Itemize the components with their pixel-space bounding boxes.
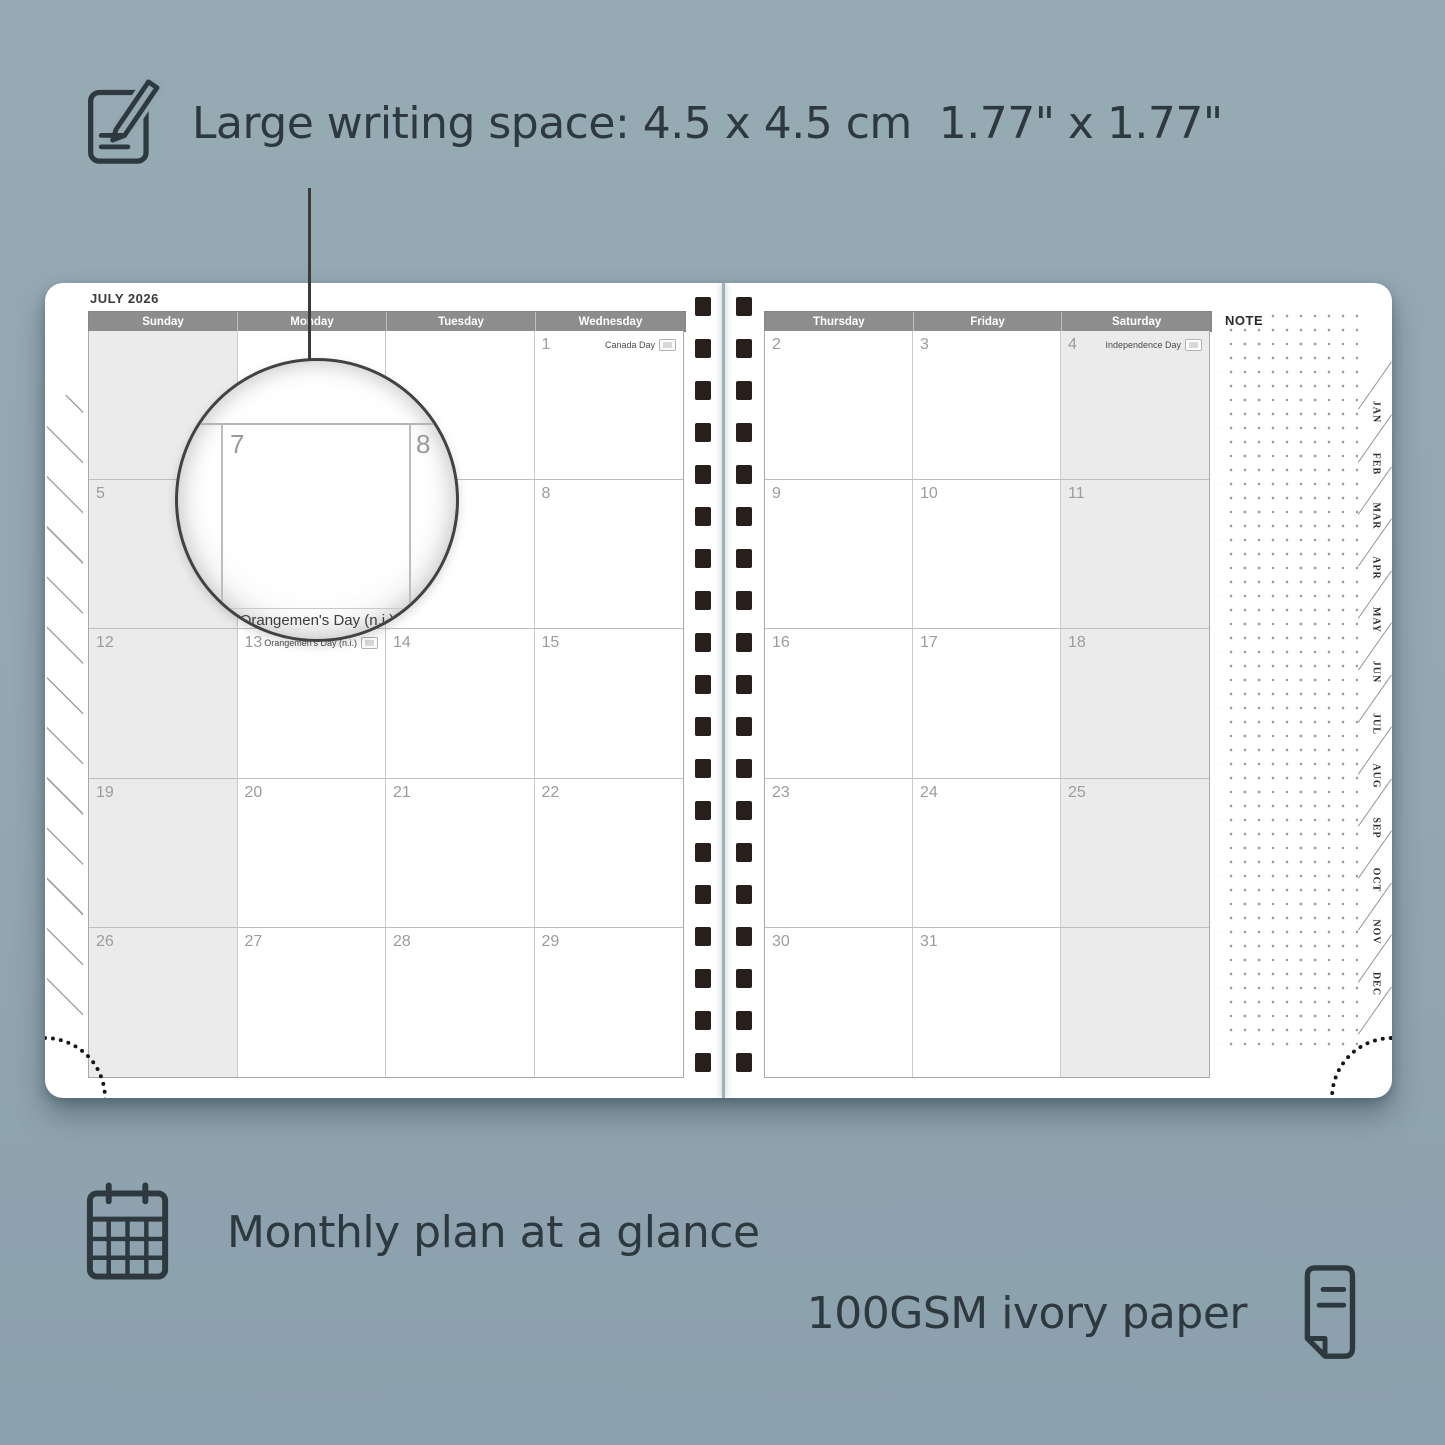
month-tab: MAR [1359, 490, 1392, 542]
calendar-cell: 18 [1061, 629, 1209, 778]
day-number: 23 [772, 784, 790, 802]
magnified-grid-line [196, 608, 438, 609]
day-number: 5 [96, 485, 105, 503]
weekday-header: Saturday [1062, 312, 1211, 331]
magnified-grid-line [221, 423, 223, 609]
spiral-hole-icon [695, 507, 711, 526]
flag-badge-icon [361, 637, 378, 649]
month-tab: OCT [1359, 854, 1392, 906]
spiral-hole-icon [695, 423, 711, 442]
holiday-label: Canada Day [605, 340, 655, 350]
calendar-cell: 21 [386, 779, 535, 928]
month-tab-label: NOV [1371, 919, 1382, 944]
weekday-header-row-right: ThursdayFridaySaturday [764, 311, 1212, 332]
spiral-hole-icon [736, 927, 752, 946]
spiral-hole-icon [736, 591, 752, 610]
month-tab-label: OCT [1371, 868, 1382, 893]
spiral-hole-icon [695, 549, 711, 568]
day-number: 12 [96, 634, 114, 652]
spiral-hole-icon [736, 465, 752, 484]
weekday-header: Thursday [765, 312, 914, 331]
day-number: 9 [772, 485, 781, 503]
left-margin-hatch-pattern [47, 395, 83, 1028]
day-number: 21 [393, 784, 411, 802]
page-gap [722, 283, 725, 1098]
month-tab-label: MAR [1371, 503, 1382, 530]
magnified-day-number: 8 [416, 429, 430, 460]
holiday-event: Canada Day [605, 339, 676, 351]
feature-paper-label: 100GSM ivory paper [807, 1288, 1247, 1339]
calendar-cell: 24 [913, 779, 1061, 928]
month-tab-label: DEC [1371, 972, 1382, 996]
calendar-cell: 4Independence Day [1061, 331, 1209, 480]
product-image: Large writing space: 4.5 x 4.5 cm 1.77" … [0, 0, 1445, 1445]
day-number: 28 [393, 933, 411, 951]
day-number: 27 [245, 933, 263, 951]
feature-writing-space: Large writing space: 4.5 x 4.5 cm 1.77" … [84, 76, 1223, 170]
feature-monthly-plan-label: Monthly plan at a glance [227, 1207, 760, 1258]
day-number: 22 [542, 784, 560, 802]
spiral-hole-icon [736, 885, 752, 904]
spiral-hole-icon [736, 633, 752, 652]
feature-paper: 100GSM ivory paper [807, 1262, 1367, 1364]
month-tab-label: JUN [1371, 661, 1382, 683]
note-dot-grid [1218, 311, 1358, 1049]
day-number: 14 [393, 634, 411, 652]
month-tab-strip: JANFEBMARAPRMAYJUNJULAUGSEPOCTNOVDEC [1359, 386, 1392, 1010]
spiral-hole-icon [695, 759, 711, 778]
month-tab: NOV [1359, 906, 1392, 958]
day-number: 31 [920, 933, 938, 951]
calendar-grid-right: 234Independence Day910111617182324253031 [764, 331, 1210, 1078]
calendar-cell: 30 [765, 928, 913, 1077]
calendar-cell: 15 [535, 629, 684, 778]
day-number: 16 [772, 634, 790, 652]
day-number: 29 [542, 933, 560, 951]
month-tab: SEP [1359, 802, 1392, 854]
month-tab-label: AUG [1371, 763, 1382, 788]
spiral-hole-icon [736, 759, 752, 778]
spiral-hole-icon [695, 1011, 711, 1030]
month-tab: APR [1359, 542, 1392, 594]
magnified-grid-line [178, 423, 456, 425]
spiral-hole-icon [736, 801, 752, 820]
magnified-day-number: 7 [230, 429, 244, 460]
spiral-hole-icon [736, 507, 752, 526]
month-tab-label: SEP [1371, 817, 1382, 838]
month-title: JULY 2026 [90, 291, 159, 306]
day-number: 10 [920, 485, 938, 503]
month-tab: MAY [1359, 594, 1392, 646]
calendar-cell: 8 [535, 480, 684, 629]
planner-spread: JULY 2026 SundayMondayTuesdayWednesday 1… [45, 283, 1392, 1098]
calendar-cell: 11 [1061, 480, 1209, 629]
spiral-hole-icon [736, 675, 752, 694]
day-number: 11 [1068, 485, 1085, 503]
day-number: 15 [542, 634, 560, 652]
calendar-cell: 1Canada Day [535, 331, 684, 480]
day-number: 8 [542, 485, 551, 503]
day-number: 17 [920, 634, 938, 652]
calendar-cell: 13Orangemen's Day (n.i.) [238, 629, 387, 778]
spiral-hole-icon [695, 591, 711, 610]
month-tab: DEC [1359, 958, 1392, 1010]
spiral-hole-icon [736, 1053, 752, 1072]
feature-monthly-plan: Monthly plan at a glance [82, 1182, 760, 1282]
month-tab: JUN [1359, 646, 1392, 698]
spiral-hole-icon [736, 381, 752, 400]
spiral-hole-icon [736, 717, 752, 736]
day-number: 30 [772, 933, 790, 951]
calendar-cell: 31 [913, 928, 1061, 1077]
day-number: 18 [1068, 634, 1086, 652]
calendar-cell: 17 [913, 629, 1061, 778]
spiral-hole-icon [695, 339, 711, 358]
month-tab-label: JUL [1371, 713, 1382, 735]
calendar-cell: 19 [89, 779, 238, 928]
spiral-hole-icon [695, 927, 711, 946]
magnifier-circle: 7 8 Orangemen's Day (n.i.) [175, 358, 459, 642]
calendar-cell: 16 [765, 629, 913, 778]
month-tab-label: JAN [1371, 401, 1382, 423]
flag-badge-icon [659, 339, 676, 351]
weekday-header: Wednesday [536, 312, 685, 331]
day-number: 19 [96, 784, 114, 802]
spiral-hole-icon [695, 1053, 711, 1072]
spiral-hole-icon [695, 297, 711, 316]
calendar-cell: 23 [765, 779, 913, 928]
month-tab-label: MAY [1371, 607, 1382, 633]
month-tab: JAN [1359, 386, 1392, 438]
spiral-hole-icon [736, 969, 752, 988]
day-number: 25 [1068, 784, 1086, 802]
calendar-cell: 22 [535, 779, 684, 928]
calendar-cell: 2 [765, 331, 913, 480]
holiday-event: Independence Day [1105, 339, 1202, 351]
day-number: 2 [772, 336, 781, 354]
calendar-cell: 25 [1061, 779, 1209, 928]
day-number: 3 [920, 336, 929, 354]
calendar-cell: 26 [89, 928, 238, 1077]
day-number: 1 [542, 336, 551, 354]
day-number: 13 [245, 634, 263, 652]
month-tab: AUG [1359, 750, 1392, 802]
month-tab: JUL [1359, 698, 1392, 750]
holiday-label: Independence Day [1105, 340, 1181, 350]
note-label: NOTE [1225, 313, 1267, 328]
paper-sheet-icon [1287, 1262, 1367, 1364]
spiral-binding-right [736, 297, 752, 1072]
calendar-cell: 9 [765, 480, 913, 629]
weekday-header: Monday [238, 312, 387, 331]
spiral-hole-icon [736, 549, 752, 568]
calendar-cell: 29 [535, 928, 684, 1077]
spiral-binding-left [695, 297, 711, 1072]
pencil-note-icon [84, 76, 168, 170]
spiral-hole-icon [695, 885, 711, 904]
magnified-holiday-label: Orangemen's Day (n.i.) [178, 612, 456, 629]
calendar-cell: 14 [386, 629, 535, 778]
spiral-hole-icon [695, 633, 711, 652]
spiral-hole-icon [736, 297, 752, 316]
calendar-cell: 10 [913, 480, 1061, 629]
spiral-hole-icon [695, 717, 711, 736]
spiral-hole-icon [736, 423, 752, 442]
month-tab-label: FEB [1371, 453, 1382, 475]
day-number: 20 [245, 784, 263, 802]
spiral-hole-icon [695, 381, 711, 400]
callout-connector-line [308, 188, 311, 360]
spiral-hole-icon [736, 1011, 752, 1030]
day-number: 24 [920, 784, 938, 802]
calendar-cell: 12 [89, 629, 238, 778]
day-number: 26 [96, 933, 114, 951]
calendar-cell [1061, 928, 1209, 1077]
day-number: 4 [1068, 336, 1077, 354]
weekday-header: Friday [914, 312, 1063, 331]
magnified-grid-line [409, 423, 411, 609]
month-tab: FEB [1359, 438, 1392, 490]
weekday-header-row-left: SundayMondayTuesdayWednesday [88, 311, 686, 332]
spiral-hole-icon [736, 339, 752, 358]
flag-badge-icon [1185, 339, 1202, 351]
calendar-cell: 3 [913, 331, 1061, 480]
weekday-header: Sunday [89, 312, 238, 331]
feature-writing-space-label: Large writing space: 4.5 x 4.5 cm 1.77" … [192, 98, 1223, 149]
spiral-hole-icon [695, 465, 711, 484]
calendar-grid-icon [82, 1182, 177, 1282]
spiral-hole-icon [695, 801, 711, 820]
month-tab-label: APR [1371, 556, 1382, 580]
spiral-hole-icon [736, 843, 752, 862]
calendar-cell: 28 [386, 928, 535, 1077]
calendar-cell: 27 [238, 928, 387, 1077]
spiral-hole-icon [695, 843, 711, 862]
spiral-hole-icon [695, 969, 711, 988]
weekday-header: Tuesday [387, 312, 536, 331]
calendar-cell: 20 [238, 779, 387, 928]
spiral-hole-icon [695, 675, 711, 694]
